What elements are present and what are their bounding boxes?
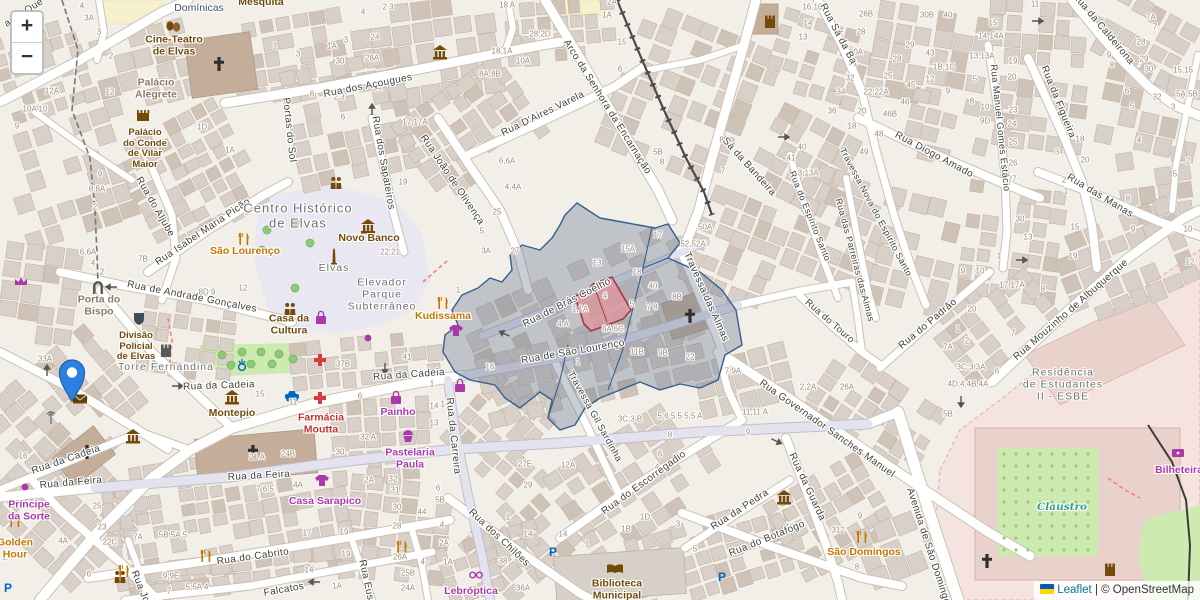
garden-dot: [1086, 548, 1089, 551]
garden-dot: [1062, 548, 1065, 551]
garden-dot: [1086, 524, 1089, 527]
garden-dot: [1086, 488, 1089, 491]
garden-dot: [1026, 524, 1029, 527]
attribution-bar: Leaflet | © OpenStreetMap: [1034, 581, 1200, 600]
parking-icon: P: [4, 581, 12, 595]
tree: [268, 360, 276, 368]
garden-dot: [1014, 464, 1017, 467]
garden-dot: [1074, 476, 1077, 479]
garden-dot: [1050, 548, 1053, 551]
garden-dot: [1002, 488, 1005, 491]
osm-copyright: © OpenStreetMap: [1101, 584, 1194, 596]
garden-dot: [1014, 476, 1017, 479]
garden-dot: [1026, 476, 1029, 479]
garden-dot: [1062, 452, 1065, 455]
garden-dot: [1014, 524, 1017, 527]
garden-dot: [1086, 452, 1089, 455]
tree: [218, 351, 226, 359]
tree: [238, 348, 246, 356]
garden-dot: [1050, 452, 1053, 455]
svg-text:P: P: [549, 545, 557, 559]
garden-dot: [1026, 536, 1029, 539]
garden-dot: [1014, 452, 1017, 455]
garden-dot: [1014, 536, 1017, 539]
garden-dot: [1086, 536, 1089, 539]
garden-dot: [1074, 512, 1077, 515]
tree: [306, 239, 314, 247]
garden-dot: [1038, 452, 1041, 455]
garden-dot: [1074, 536, 1077, 539]
garden-dot: [1074, 524, 1077, 527]
garden-dot: [1026, 512, 1029, 515]
garden-dot: [1050, 464, 1053, 467]
garden-dot: [1014, 500, 1017, 503]
tree: [247, 360, 255, 368]
svg-text:P: P: [718, 570, 726, 584]
dot-icon: [22, 484, 29, 491]
garden-dot: [1038, 476, 1041, 479]
garden-dot: [1062, 464, 1065, 467]
tree: [257, 348, 265, 356]
garden-dot: [1002, 548, 1005, 551]
garden-dot: [1086, 464, 1089, 467]
ukraine-flag-icon: [1040, 584, 1054, 594]
garden-dot: [1002, 536, 1005, 539]
zoom-in-button[interactable]: +: [12, 12, 42, 43]
garden-dot: [1062, 524, 1065, 527]
garden-dot: [1050, 524, 1053, 527]
garden-dot: [1038, 500, 1041, 503]
garden-dot: [1002, 452, 1005, 455]
tree: [258, 246, 266, 254]
garden-dot: [1074, 488, 1077, 491]
garden-dot: [1026, 464, 1029, 467]
garden-dot: [1002, 500, 1005, 503]
garden-dot: [1050, 512, 1053, 515]
garden-dot: [1002, 512, 1005, 515]
tree: [291, 284, 299, 292]
garden-dot: [1026, 488, 1029, 491]
tower-icon: [161, 345, 171, 358]
svg-text:P: P: [4, 581, 12, 595]
tree: [275, 350, 283, 358]
garden-dot: [1038, 536, 1041, 539]
garden-dot: [1050, 476, 1053, 479]
garden-dot: [1062, 500, 1065, 503]
cloister-garden: [998, 448, 1098, 556]
tree: [263, 226, 271, 234]
garden-dot: [1038, 548, 1041, 551]
garden-dot: [1026, 452, 1029, 455]
garden-dot: [1062, 536, 1065, 539]
garden-dot: [1062, 512, 1065, 515]
tree: [289, 355, 297, 363]
garden-dot: [1002, 524, 1005, 527]
garden-dot: [1050, 488, 1053, 491]
tree: [227, 361, 235, 369]
castle-icon: [1105, 564, 1115, 577]
castle-icon: [765, 16, 775, 29]
map-canvas[interactable]: PPP 43A3212A1210A 10942 3131A3243028A4 A…: [0, 0, 1200, 600]
church-building: [184, 32, 257, 99]
marker-dot: [67, 367, 77, 377]
ticket-icon: [1172, 449, 1184, 457]
tree: [291, 218, 299, 226]
garden-dot: [1074, 548, 1077, 551]
garden-dot: [1014, 548, 1017, 551]
garden-dot: [1086, 500, 1089, 503]
garden-dot: [1086, 512, 1089, 515]
garden-dot: [1074, 500, 1077, 503]
map-marker-pin[interactable]: [56, 355, 88, 403]
garden-dot: [1050, 536, 1053, 539]
dot-icon: [365, 335, 372, 342]
garden-dot: [1062, 488, 1065, 491]
garden-dot: [1038, 464, 1041, 467]
garden-dot: [1074, 452, 1077, 455]
parking-icon: P: [549, 545, 557, 559]
garden-dot: [1002, 476, 1005, 479]
garden-dot: [1086, 476, 1089, 479]
garden-dot: [1014, 512, 1017, 515]
zoom-out-button[interactable]: −: [12, 43, 42, 73]
zoom-control: + −: [10, 10, 44, 75]
garden-dot: [1026, 548, 1029, 551]
garden-dot: [1002, 464, 1005, 467]
map-tiles: PPP: [0, 0, 1200, 600]
leaflet-link[interactable]: Leaflet: [1057, 584, 1092, 596]
garden-dot: [1074, 464, 1077, 467]
garden-dot: [1038, 512, 1041, 515]
attribution-separator: |: [1095, 584, 1098, 596]
garden-dot: [1014, 488, 1017, 491]
garden-dot: [1062, 476, 1065, 479]
garden-dot: [1026, 500, 1029, 503]
parking-icon: P: [718, 570, 726, 584]
garden-dot: [1038, 488, 1041, 491]
garden-dot: [1038, 524, 1041, 527]
garden-dot: [1050, 500, 1053, 503]
